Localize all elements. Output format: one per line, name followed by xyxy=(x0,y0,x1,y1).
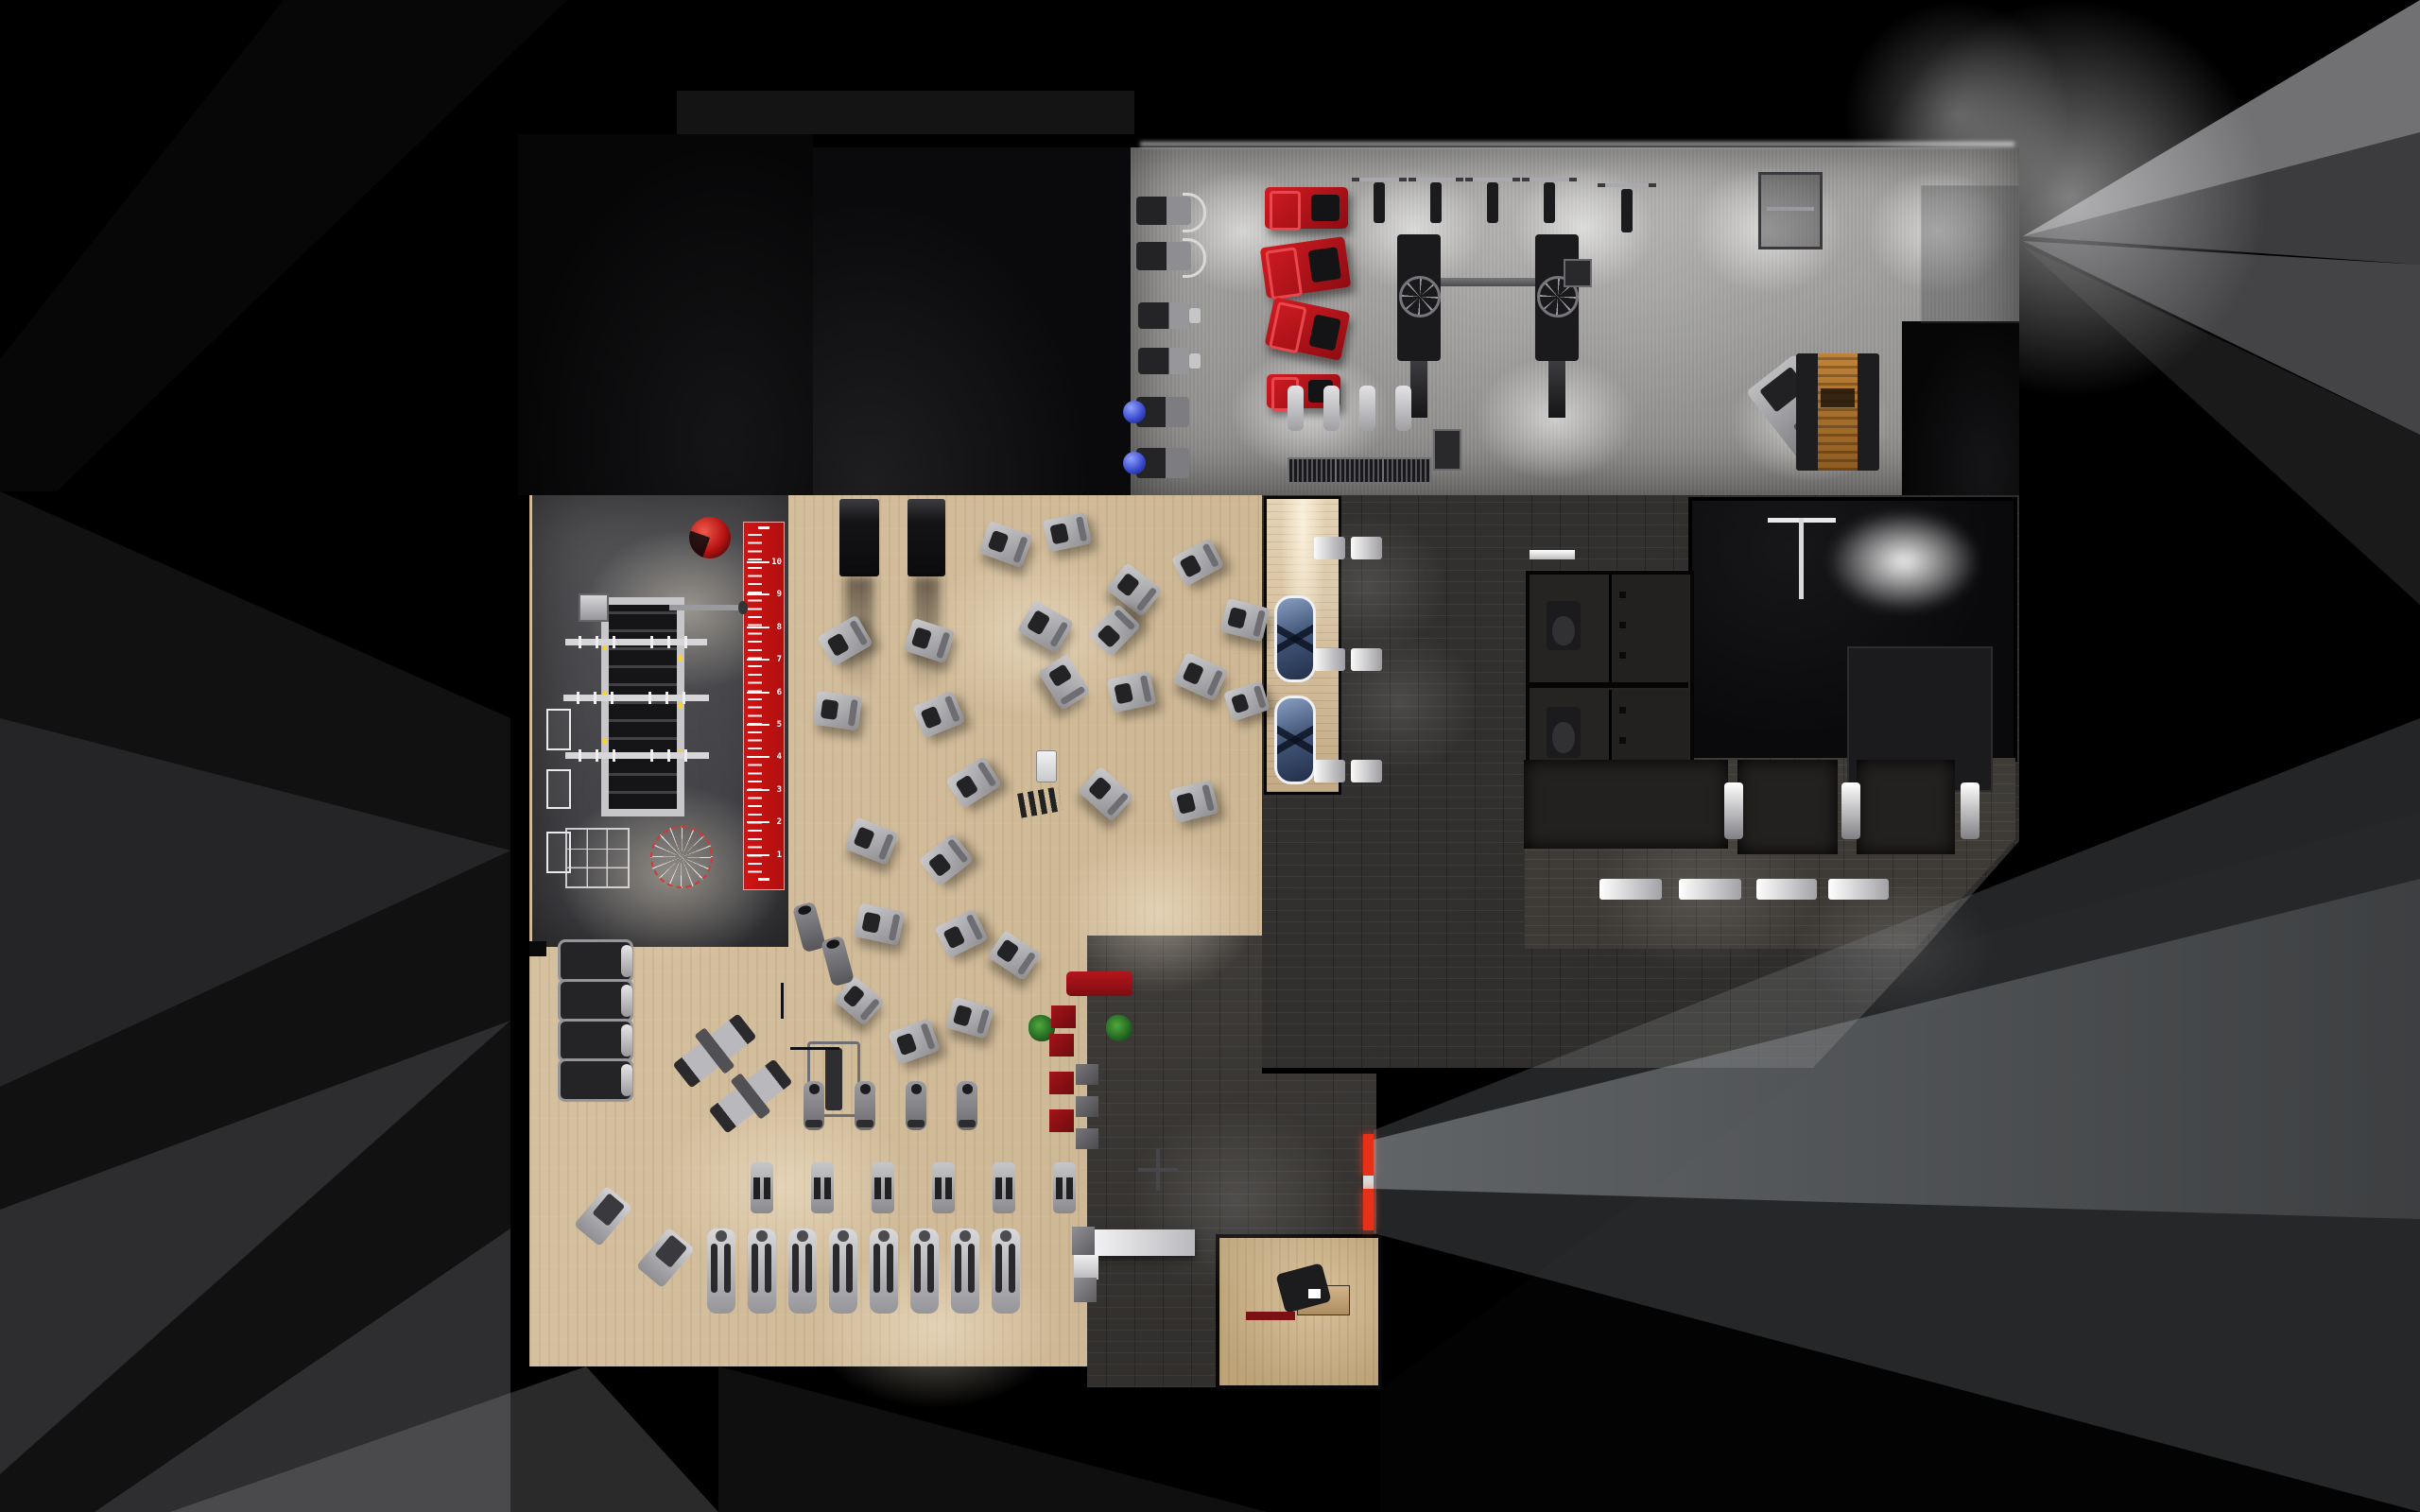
stepper xyxy=(1053,1162,1076,1213)
bench-with-ball xyxy=(1136,397,1189,427)
track-distance-label: 3 xyxy=(777,786,782,795)
squat-rack xyxy=(1758,172,1823,249)
red-ottoman xyxy=(1049,1109,1074,1132)
entrance-door-gap xyxy=(1363,1176,1374,1189)
track-distance-label: 9 xyxy=(777,591,782,599)
ladder-climb-machine xyxy=(1796,353,1879,471)
locker-bench-pair xyxy=(1314,760,1382,782)
massage-pod xyxy=(1274,595,1316,682)
accessory-rack xyxy=(1564,259,1592,287)
landmine-bar xyxy=(669,605,743,610)
dark-room-top-right xyxy=(1902,321,2019,495)
track-tick xyxy=(747,659,769,661)
light-pool xyxy=(1059,832,1257,992)
upright-bike xyxy=(855,1081,875,1130)
functional-rig xyxy=(601,597,684,816)
shower-partition xyxy=(1737,760,1838,854)
elliptical xyxy=(910,1228,939,1314)
cable-crossover-beam xyxy=(1441,278,1535,286)
treadmill xyxy=(558,1019,633,1062)
track-distance-label: 8 xyxy=(777,624,782,632)
toilet xyxy=(1547,707,1581,758)
elliptical xyxy=(788,1228,817,1314)
track-distance-label: 7 xyxy=(777,656,782,664)
dumbbell-rack xyxy=(1288,457,1337,484)
track-distance-label: 1 xyxy=(777,851,782,860)
treadmill xyxy=(558,979,633,1022)
reception-counter xyxy=(1074,1253,1098,1280)
stepper xyxy=(932,1162,955,1213)
desk-paper xyxy=(1308,1289,1321,1298)
gray-ottoman xyxy=(1076,1064,1098,1085)
threshold-light xyxy=(1530,550,1575,559)
track-tick xyxy=(747,593,769,595)
treadmill xyxy=(558,939,633,983)
accessory-rack xyxy=(1433,429,1461,471)
entry-mat xyxy=(1246,1312,1295,1320)
dumbbell-rack xyxy=(1335,457,1384,484)
flat-bench xyxy=(1138,348,1189,374)
barbell-station xyxy=(1465,174,1520,223)
treadmill xyxy=(558,1058,633,1102)
track-tick xyxy=(747,821,769,823)
washroom-bench xyxy=(1599,879,1662,900)
sink xyxy=(1724,782,1743,839)
track-distance-label: 4 xyxy=(777,753,782,762)
washroom-bench xyxy=(1828,879,1889,900)
upright-bike xyxy=(804,1081,824,1130)
cable-tower xyxy=(839,499,879,576)
upright-bench xyxy=(1359,386,1375,431)
elliptical xyxy=(992,1228,1020,1314)
track-distance-label: 10 xyxy=(771,558,782,567)
barbell xyxy=(563,695,709,701)
washroom-wall xyxy=(1524,760,1728,849)
stall-divider xyxy=(1526,682,1688,688)
agility-grid xyxy=(565,828,630,888)
track-tick xyxy=(747,854,769,856)
gray-ottoman xyxy=(1076,1128,1098,1149)
plate-loaded-machine xyxy=(1265,187,1348,229)
washroom-bench xyxy=(1679,879,1741,900)
track-tick xyxy=(747,724,769,726)
track-distance-label: 2 xyxy=(777,818,782,827)
lit-wall-edge xyxy=(1140,142,2014,146)
agility-wheel xyxy=(650,826,713,888)
stepper xyxy=(872,1162,894,1213)
elliptical xyxy=(829,1228,857,1314)
red-ottoman xyxy=(1049,1034,1074,1057)
towel-rail xyxy=(1768,518,1836,599)
track-tick xyxy=(747,756,769,758)
red-sofa xyxy=(1066,971,1132,996)
stepper xyxy=(751,1162,773,1213)
sink xyxy=(1841,782,1860,839)
body-scale xyxy=(1036,750,1057,782)
floor-box xyxy=(529,941,546,956)
stepper xyxy=(993,1162,1015,1213)
elliptical xyxy=(870,1228,898,1314)
top-wall-band xyxy=(677,91,1134,134)
locker-bench-pair xyxy=(1314,648,1382,671)
flat-bench xyxy=(1138,302,1189,329)
track-tick xyxy=(747,561,769,563)
bench-press-station xyxy=(1598,180,1656,232)
track-distance-label: 5 xyxy=(777,721,782,730)
red-ottoman xyxy=(1051,1005,1076,1028)
stepper xyxy=(811,1162,834,1213)
cable-tower xyxy=(907,499,945,576)
alcove-panel xyxy=(1921,185,2019,323)
adjustable-bench xyxy=(1136,242,1191,270)
barbell-station xyxy=(1352,174,1407,223)
plyo-box xyxy=(546,769,571,809)
sprint-track: 12345678910 xyxy=(743,522,785,890)
barbell-station xyxy=(1522,174,1577,223)
dark-studio-main xyxy=(813,147,1131,495)
shower-partition xyxy=(1857,760,1955,854)
adjustable-bench xyxy=(1136,197,1191,225)
coat-stand xyxy=(1138,1149,1178,1191)
dark-studio-left xyxy=(518,134,813,495)
washroom-bench xyxy=(1756,879,1817,900)
track-distance-label: 6 xyxy=(777,689,782,697)
counter-end xyxy=(1074,1278,1097,1302)
gray-ottoman xyxy=(1076,1096,1098,1117)
storage-box xyxy=(579,593,609,622)
track-tick xyxy=(747,627,769,628)
upright-bench xyxy=(1323,386,1340,431)
upright-bench xyxy=(1395,386,1411,431)
dumbbell-rack xyxy=(1382,457,1431,484)
entrance-door-leaf xyxy=(1363,1189,1374,1230)
stretch-bar xyxy=(781,983,784,1019)
upright-bike xyxy=(906,1081,926,1130)
plyo-box xyxy=(546,709,571,750)
barbell-station xyxy=(1409,174,1463,223)
elliptical xyxy=(707,1228,735,1314)
toilet xyxy=(1547,601,1581,650)
track-tick xyxy=(747,692,769,694)
sink xyxy=(1961,782,1979,839)
upright-bench xyxy=(1288,386,1304,431)
locker-bench-pair xyxy=(1314,537,1382,559)
reception-counter xyxy=(1091,1229,1195,1256)
counter-end xyxy=(1072,1227,1095,1255)
ceiling-light-glow xyxy=(1828,510,1979,612)
strength-machine xyxy=(813,691,863,730)
gym-floorplan-render: 12345678910 xyxy=(0,0,2420,1512)
bench-with-ball xyxy=(1136,448,1189,478)
punching-bag xyxy=(689,517,731,558)
entrance-door-leaf xyxy=(1363,1134,1374,1176)
stretch-bar xyxy=(790,1047,839,1050)
elliptical xyxy=(748,1228,776,1314)
elliptical xyxy=(951,1228,979,1314)
cable-crossover-tower xyxy=(1535,234,1579,361)
upright-bike xyxy=(957,1081,977,1130)
stall-door xyxy=(1609,575,1689,682)
track-tick xyxy=(747,789,769,791)
plant xyxy=(1106,1015,1132,1041)
barbell xyxy=(565,752,709,759)
red-ottoman xyxy=(1049,1072,1074,1094)
barbell xyxy=(565,639,707,645)
massage-pod xyxy=(1274,696,1316,784)
cable-crossover-tower xyxy=(1397,234,1441,361)
